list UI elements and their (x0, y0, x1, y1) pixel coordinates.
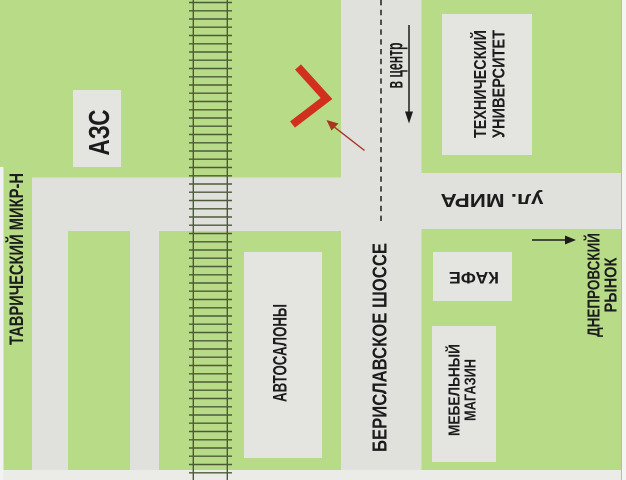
svg-text:БЕРИСЛАВСКОЕ ШОССЕ: БЕРИСЛАВСКОЕ ШОССЕ (369, 243, 392, 452)
svg-text:МАГАЗИН: МАГАЗИН (462, 359, 479, 421)
svg-text:КАФЕ: КАФЕ (449, 268, 499, 286)
svg-text:ул. МИРА: ул. МИРА (441, 190, 544, 210)
svg-text:в центр: в центр (382, 43, 408, 89)
svg-text:ТЕХНИЧЕСКИЙ: ТЕХНИЧЕСКИЙ (469, 30, 490, 138)
svg-text:УНИВЕРСИТЕТ: УНИВЕРСИТЕТ (489, 30, 509, 138)
svg-text:АЗС: АЗС (84, 110, 116, 156)
svg-text:МЕБЕЛЬНЫЙ: МЕБЕЛЬНЫЙ (445, 344, 464, 436)
svg-text:АВТОСАЛОНЫ: АВТОСАЛОНЫ (271, 304, 292, 402)
svg-text:РЫНОК: РЫНОК (601, 257, 621, 312)
svg-text:ТАВРИЧЕСКИЙ МИКР-Н: ТАВРИЧЕСКИЙ МИКР-Н (6, 173, 28, 345)
